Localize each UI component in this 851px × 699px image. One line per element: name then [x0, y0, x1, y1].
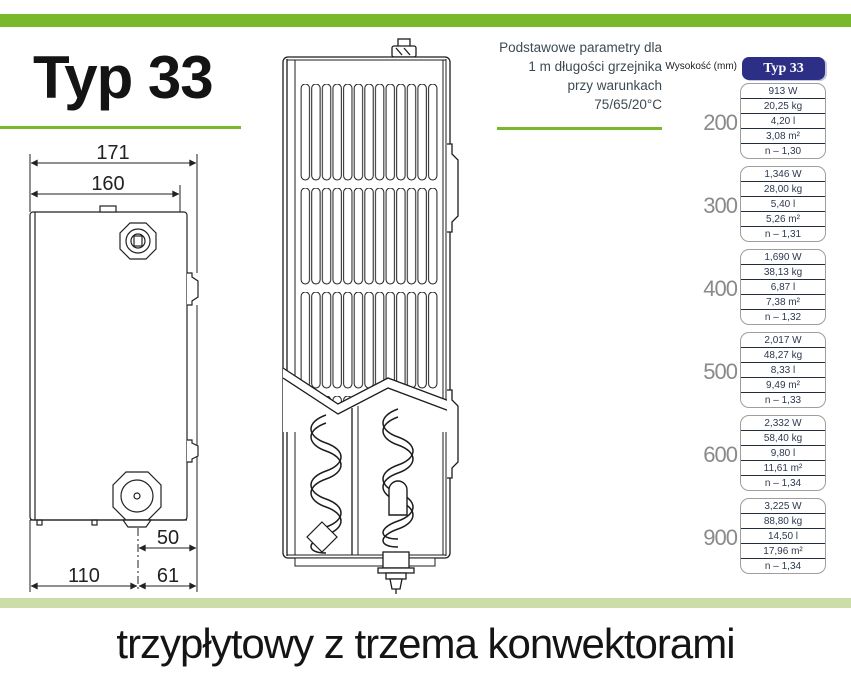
- value-weight: 58,40 kg: [741, 430, 825, 445]
- radiator-side-view-drawing: 171 160 50 110 61: [20, 140, 210, 600]
- value-weight: 28,00 kg: [741, 181, 825, 196]
- value-surface: 11,61 m²: [741, 460, 825, 475]
- value-surface: 5,26 m²: [741, 211, 825, 226]
- value-surface: 9,49 m²: [741, 377, 825, 392]
- height-label-900: 900: [655, 525, 737, 551]
- height-label-200: 200: [655, 110, 737, 136]
- value-exponent: n – 1,31: [741, 226, 825, 241]
- value-surface: 3,08 m²: [741, 128, 825, 143]
- value-capacity: 14,50 l: [741, 528, 825, 543]
- dimension-label-50: 50: [157, 527, 179, 549]
- table-group-400: 1,690 W 38,13 kg 6,87 l 7,38 m² n – 1,32: [740, 249, 826, 325]
- front-bracket-upper: [447, 144, 458, 232]
- table-type-header: Typ 33: [742, 57, 825, 80]
- title-underline: [0, 126, 241, 129]
- value-exponent: n – 1,30: [741, 143, 825, 158]
- value-surface: 7,38 m²: [741, 294, 825, 309]
- value-exponent: n – 1,32: [741, 309, 825, 324]
- dimension-label-160: 160: [91, 173, 124, 195]
- grille-slots: [300, 84, 438, 402]
- value-power: 1,346 W: [741, 167, 825, 181]
- type-description-caption: trzypłytowy z trzema konwektorami: [0, 620, 851, 668]
- height-label-600: 600: [655, 442, 737, 468]
- value-power: 1,690 W: [741, 250, 825, 264]
- value-capacity: 8,33 l: [741, 362, 825, 377]
- wall-bracket-lower: [187, 440, 198, 462]
- table-group-900: 3,225 W 88,80 kg 14,50 l 17,96 m² n – 1,…: [740, 498, 826, 574]
- value-weight: 20,25 kg: [741, 98, 825, 113]
- table-height-column-label: Wysokość (mm): [650, 61, 737, 72]
- radiator-front-view-drawing: [275, 32, 475, 598]
- bottom-accent-band: [0, 598, 851, 608]
- front-bracket-lower: [447, 390, 458, 478]
- value-power: 3,225 W: [741, 499, 825, 513]
- datasheet-page: Typ 33 Podstawowe parametry dla 1 m dług…: [0, 0, 851, 699]
- table-group-500: 2,017 W 48,27 kg 8,33 l 9,49 m² n – 1,33: [740, 332, 826, 408]
- note-underline: [497, 127, 662, 130]
- table-group-600: 2,332 W 58,40 kg 9,80 l 11,61 m² n – 1,3…: [740, 415, 826, 491]
- value-weight: 38,13 kg: [741, 264, 825, 279]
- dimension-label-171: 171: [96, 142, 129, 164]
- page-title: Typ 33: [33, 43, 263, 112]
- top-accent-bar: [0, 14, 851, 27]
- dimension-label-110: 110: [68, 565, 100, 587]
- height-label-500: 500: [655, 359, 737, 385]
- value-exponent: n – 1,33: [741, 392, 825, 407]
- table-group-300: 1,346 W 28,00 kg 5,40 l 5,26 m² n – 1,31: [740, 166, 826, 242]
- value-weight: 88,80 kg: [741, 513, 825, 528]
- value-exponent: n – 1,34: [741, 558, 825, 573]
- height-label-300: 300: [655, 193, 737, 219]
- top-valve: [120, 223, 156, 259]
- value-weight: 48,27 kg: [741, 347, 825, 362]
- value-capacity: 6,87 l: [741, 279, 825, 294]
- vent-keyhole: [389, 481, 407, 515]
- value-power: 2,332 W: [741, 416, 825, 430]
- value-power: 913 W: [741, 84, 825, 98]
- height-label-400: 400: [655, 276, 737, 302]
- value-capacity: 5,40 l: [741, 196, 825, 211]
- front-bottom-valve: [378, 552, 414, 594]
- table-group-200: 913 W 20,25 kg 4,20 l 3,08 m² n – 1,30: [740, 83, 826, 159]
- value-exponent: n – 1,34: [741, 475, 825, 490]
- wall-bracket-upper: [187, 273, 198, 305]
- value-surface: 17,96 m²: [741, 543, 825, 558]
- side-body: [30, 212, 187, 520]
- dimension-label-61: 61: [157, 565, 179, 587]
- front-top-valve: [392, 39, 416, 57]
- value-capacity: 9,80 l: [741, 445, 825, 460]
- value-power: 2,017 W: [741, 333, 825, 347]
- value-capacity: 4,20 l: [741, 113, 825, 128]
